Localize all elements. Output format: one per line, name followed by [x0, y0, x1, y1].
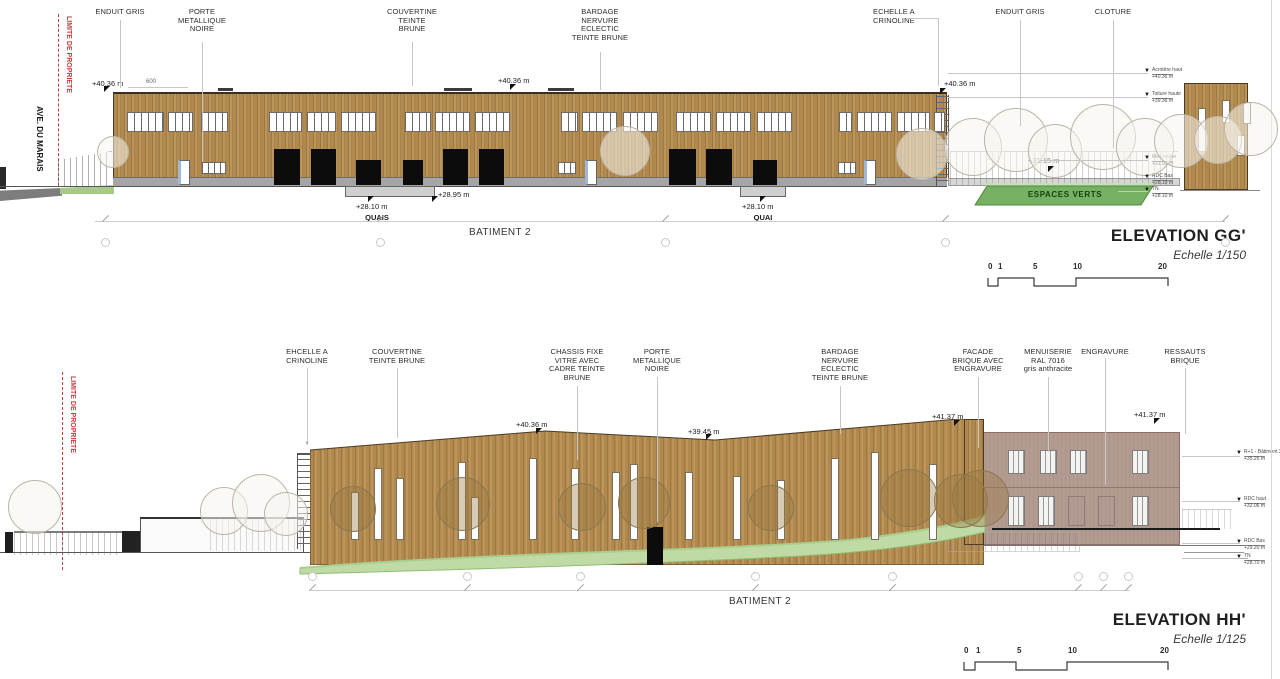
grid-bubble: [1124, 572, 1133, 581]
level-annotation: Toiture haute+39.36 m: [1152, 92, 1181, 104]
quai-level: +28.95 m: [438, 190, 469, 199]
leader-line: [948, 97, 1148, 98]
leader-line: [657, 377, 658, 522]
leader-line: [1040, 160, 1148, 161]
scale-tick: 1: [998, 262, 1002, 271]
clerestory-window-group: [168, 112, 193, 132]
level-mark: +40.36 m: [516, 420, 547, 429]
clerestory-window-group: [341, 112, 376, 132]
level-marker-triangle: ▼: [1236, 554, 1242, 560]
callout-facade-brique: FACADE BRIQUE AVEC ENGRAVURE: [938, 348, 1018, 374]
callout-enduit-gris: ENDUIT GRIS: [80, 8, 160, 17]
scale-tick: 20: [1158, 262, 1167, 271]
dimension-tick: [1222, 215, 1229, 222]
quai-platform: [345, 186, 435, 197]
gate-fence: [1182, 509, 1232, 529]
grid-bubble: [1074, 572, 1083, 581]
leader-line: [1182, 558, 1240, 559]
clerestory-window-group: [201, 112, 228, 132]
leader-line: [307, 368, 308, 445]
dock-door-black: [356, 160, 381, 185]
grid-bubble: [463, 572, 472, 581]
batiment2-label-gg: BATIMENT 2: [455, 227, 545, 238]
stair-step: [1184, 552, 1244, 553]
leader-line: [938, 18, 939, 86]
callout-echelle-crinoline: ECHELLE A CRINOLINE: [873, 8, 943, 25]
leader-line: [120, 20, 121, 88]
leader-line: [1113, 20, 1114, 148]
level-mark: +41.37 m: [1134, 410, 1165, 419]
leader-line: [1105, 358, 1106, 485]
grid-bubble: [1099, 572, 1108, 581]
tree: [952, 470, 1009, 527]
brick-window: [1040, 450, 1057, 474]
scale-tick: 20: [1160, 646, 1169, 655]
callout-couvertine: COUVERTINE TEINTE BRUNE: [352, 348, 442, 365]
callout-ressauts-brique: RESSAUTS BRIQUE: [1145, 348, 1225, 365]
level-annotation: RDC Bas+29.20 m: [1244, 539, 1265, 551]
level-annotation: RDC haut+32.06 m: [1244, 497, 1266, 509]
leader-line: [840, 386, 841, 434]
callout-porte-metallique: PORTE METALLIQUE NOIRE: [622, 348, 692, 374]
leader-line: [412, 42, 413, 86]
scale-tick: 10: [1073, 262, 1082, 271]
tree: [330, 486, 376, 532]
slot-window: [871, 452, 879, 540]
level-marker-triangle: ▼: [1144, 174, 1150, 180]
grid-bubble: [1221, 238, 1230, 247]
tree: [8, 480, 62, 534]
metal-door-black: [647, 527, 663, 565]
quai-level: +28.10 m: [356, 202, 387, 211]
level-mark-flag: [706, 434, 712, 440]
tree: [600, 126, 650, 176]
callout-bardage: BARDAGE NERVURE ECLECTIC TEINTE BRUNE: [560, 8, 640, 42]
dim-bracket-gg: [95, 221, 1225, 222]
brick-window: [1070, 450, 1087, 474]
level-annotation: Acrotère haut+40.36 m: [1152, 68, 1182, 80]
tree: [1224, 102, 1278, 156]
brick-window: [1008, 450, 1025, 474]
scale-bar-gg: 0 1 5 10 20: [986, 262, 1172, 292]
leader-arrowhead: ▼: [304, 441, 310, 447]
sectional-door-black: [274, 149, 300, 185]
callout-cloture: CLOTURE: [1073, 8, 1153, 17]
pedestrian-door: [178, 160, 190, 185]
brick-window: [1008, 496, 1025, 526]
clerestory-window-group: [857, 112, 892, 132]
leader-line: [1182, 543, 1240, 544]
slot-window: [529, 458, 537, 540]
sectional-door-black: [669, 149, 696, 185]
leader-line: [1185, 368, 1186, 434]
level-mark: +39.45 m: [688, 427, 719, 436]
level-annotation: TN+28.10 m: [1152, 187, 1173, 199]
espaces-verts-label: ESPACES VERTS: [1005, 190, 1125, 199]
leader-line: [600, 52, 601, 90]
sectional-door-black: [479, 149, 504, 185]
clerestory-window-group: [676, 112, 711, 132]
level-mark-flag: [1154, 418, 1160, 424]
slot-window: [831, 458, 839, 540]
level-marker-triangle: ▼: [1236, 497, 1242, 503]
brick-window: [1132, 450, 1149, 474]
clerestory-window-group: [405, 112, 431, 132]
tree: [748, 485, 794, 531]
scale-tick: 0: [964, 646, 968, 655]
pedestrian-door: [864, 160, 876, 185]
level-mark-flag: [368, 196, 374, 202]
tree: [896, 128, 948, 180]
leader-line: [128, 87, 188, 88]
low-wall: [14, 531, 122, 555]
tree: [97, 136, 129, 168]
level-marker-triangle: ▼: [1144, 92, 1150, 98]
property-line-label: LIMITE DE PROPRIETE: [69, 376, 76, 453]
callout-engravure: ENGRAVURE: [1065, 348, 1145, 357]
tree: [618, 477, 670, 529]
level-mark-flag: [760, 196, 766, 202]
level-annotation: R+1 - Bâtiment 2+35.26 m: [1244, 450, 1280, 462]
clerestory-window-group: [307, 112, 336, 132]
quai-level: +28.10 m: [742, 202, 773, 211]
elevation-hh-scale: Echelle 1/125: [1000, 632, 1246, 646]
dim-bracket-hh: [310, 590, 1130, 591]
window-pair: [838, 162, 856, 174]
dark-opening: [122, 531, 140, 552]
sectional-door-black: [311, 149, 336, 185]
grid-bubble: [576, 572, 585, 581]
ground-line-gg-right: [1180, 190, 1260, 191]
tree: [558, 483, 606, 531]
clerestory-window-group: [757, 112, 792, 132]
grid-bubble: [661, 238, 670, 247]
level-mark-flag: [536, 428, 542, 434]
leader-line: [907, 18, 938, 19]
grid-bubble: [308, 572, 317, 581]
callout-ehcelle-crinoline: EHCELLE A CRINOLINE: [272, 348, 342, 365]
clerestory-window-group: [475, 112, 510, 132]
dimension-600: 600: [146, 79, 156, 85]
couvertine-accent: [548, 88, 574, 91]
ground-line-gg: [0, 186, 947, 187]
callout-bardage: BARDAGE NERVURE ECLECTIC TEINTE BRUNE: [800, 348, 880, 382]
brick-window: [1132, 496, 1149, 526]
level-marker-triangle: ▼: [1236, 450, 1242, 456]
level-annotation: TN+28.70 m: [1244, 554, 1265, 566]
scale-tick: 0: [988, 262, 992, 271]
leader-line: [577, 386, 578, 460]
window-pair: [558, 162, 576, 174]
clerestory-window-group: [435, 112, 470, 132]
scale-tick: 10: [1068, 646, 1077, 655]
sheet-frame-line: [1271, 0, 1272, 679]
grid-bubble: [101, 238, 110, 247]
slot-window: [733, 476, 741, 540]
ground-line-hh-right: [984, 545, 1260, 546]
engravure-panel: [1098, 496, 1115, 526]
level-mark-flag: [1048, 166, 1054, 172]
level-marker-triangle: ▼: [1144, 155, 1150, 161]
couvertine-accent: [218, 88, 233, 91]
street-label: AVE. DU MARAIS: [35, 106, 44, 172]
level-marker-triangle: ▼: [1144, 68, 1150, 74]
slot-window: [396, 478, 404, 540]
leader-line: [397, 368, 398, 438]
couvertine-accent: [444, 88, 472, 91]
callout-porte-metallique: PORTE METALLIQUE NOIRE: [167, 8, 237, 34]
level-mark-flag: [104, 86, 110, 92]
facade-batiment2-gg: [113, 92, 947, 186]
elevation-drawing-sheet: LIMITE DE PROPRIETE AVE. DU MARAIS ENDUI…: [0, 0, 1280, 679]
tree: [264, 492, 308, 536]
leader-line: [978, 377, 979, 448]
pedestrian-door: [585, 160, 597, 185]
level-mark: +40.36 m: [944, 79, 975, 88]
level-mark-flag: [510, 84, 516, 90]
property-line-label: LIMITE DE PROPRIETE: [65, 16, 72, 93]
grid-bubble: [751, 572, 760, 581]
level-mark-flag: [940, 88, 946, 94]
elevation-hh-title: ELEVATION HH': [1000, 610, 1246, 630]
road-ramp: [0, 188, 62, 201]
level-marker-triangle: ▼: [1236, 539, 1242, 545]
grid-bubble: [376, 238, 385, 247]
clerestory-window-group: [561, 112, 578, 132]
grid-bubble: [888, 572, 897, 581]
window-pair: [202, 162, 226, 174]
callout-enduit-gris-2: ENDUIT GRIS: [980, 8, 1060, 17]
level-annotation: RDC Bas+28.10 m: [1152, 174, 1173, 186]
leader-line: [1182, 501, 1240, 502]
wall-stub: [5, 532, 13, 553]
scale-tick: 5: [1017, 646, 1021, 655]
leader-line: [1048, 377, 1049, 452]
clerestory-window-group: [934, 112, 945, 132]
scale-tick: 5: [1033, 262, 1037, 271]
clerestory-window-group: [839, 112, 852, 132]
clerestory-window-group: [269, 112, 302, 132]
engravure-panel: [1068, 496, 1085, 526]
elevation-gg-title: ELEVATION GG': [1000, 226, 1246, 246]
dock-door-black: [753, 160, 777, 185]
level-marker-triangle: ▼: [1144, 187, 1150, 193]
tree: [436, 477, 490, 531]
callout-chassis-fixe: CHASSIS FIXE VITRE AVEC CADRE TEINTE BRU…: [537, 348, 617, 382]
callout-couvertine: COUVERTINE TEINTE BRUNE: [377, 8, 447, 34]
clerestory-window-group: [716, 112, 751, 132]
leader-line: [1182, 456, 1240, 457]
level-mark-flag: [432, 196, 438, 202]
clerestory-window-group: [127, 112, 164, 132]
slot-window: [685, 472, 693, 540]
sectional-door-black: [443, 149, 468, 185]
level-mark-flag: [954, 420, 960, 426]
dock-door-black: [403, 160, 423, 185]
batiment2-label-hh: BATIMENT 2: [710, 596, 810, 607]
tree: [880, 469, 938, 527]
leader-line: [948, 73, 1148, 74]
scale-bar-hh: 0 1 5 10 20: [962, 646, 1174, 676]
leader-line: [202, 42, 203, 162]
elevation-gg-scale: Echelle 1/150: [1000, 248, 1246, 262]
brick-window: [1038, 496, 1055, 526]
scale-tick: 1: [976, 646, 980, 655]
sectional-door-black: [706, 149, 732, 185]
grid-bubble: [941, 238, 950, 247]
